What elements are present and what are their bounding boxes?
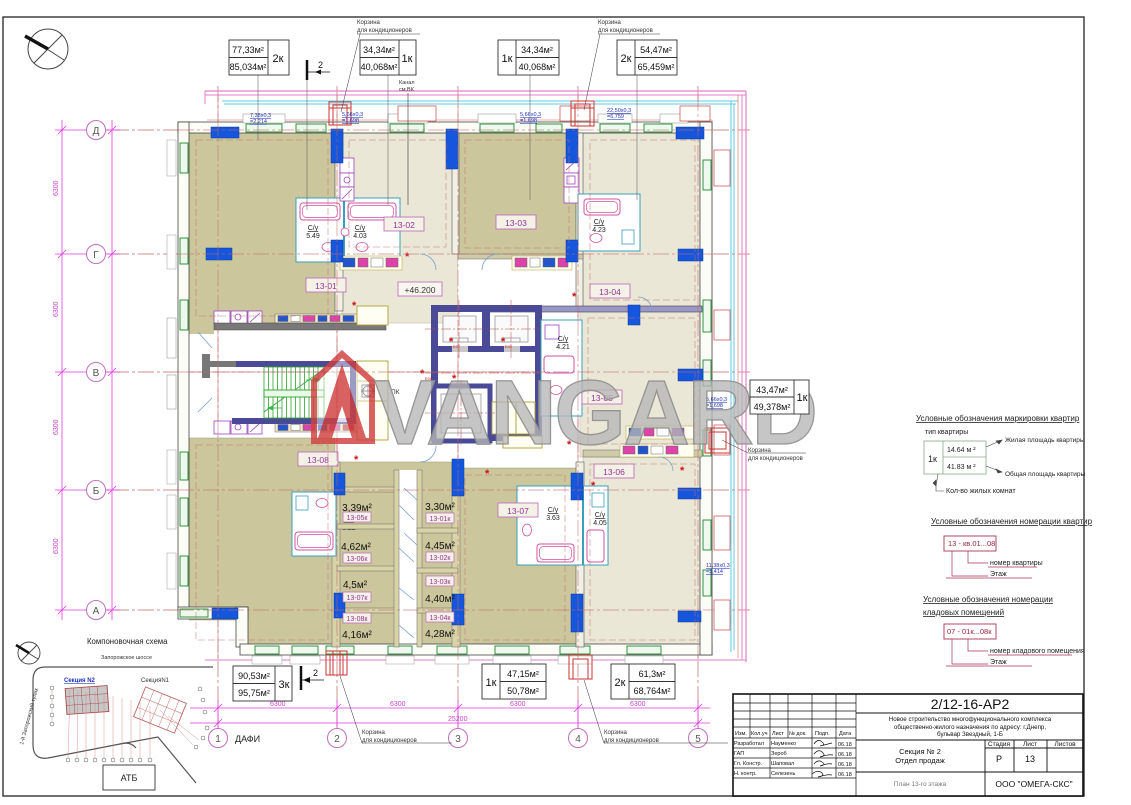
svg-text:В: В (93, 368, 100, 379)
svg-text:С/у: С/у (558, 336, 569, 343)
svg-text:6300: 6300 (510, 701, 526, 708)
svg-text:Дата: Дата (839, 731, 852, 737)
svg-text:40,068м²: 40,068м² (519, 62, 556, 72)
svg-text:4.03: 4.03 (353, 233, 367, 240)
svg-text:План 13-го этажа: План 13-го этажа (894, 781, 947, 788)
svg-text:Д: Д (93, 126, 100, 137)
svg-text:4,40м²: 4,40м² (425, 594, 455, 605)
svg-text:тип квартиры: тип квартиры (925, 429, 968, 436)
svg-text:5.49: 5.49 (306, 233, 320, 240)
svg-text:Условные обозначения маркировк: Условные обозначения маркировки квартир (916, 414, 1080, 423)
svg-text:Этаж: Этаж (990, 571, 1007, 578)
svg-text:Селезень: Селезень (771, 771, 796, 777)
svg-text:13-06: 13-06 (603, 467, 625, 477)
svg-text:13-06к: 13-06к (347, 556, 369, 563)
svg-text:4.21: 4.21 (556, 344, 570, 351)
svg-text:6300: 6300 (53, 180, 60, 196)
svg-text:3,30м²: 3,30м² (425, 502, 455, 513)
svg-text:4,28м²: 4,28м² (425, 629, 455, 640)
svg-text:С/у: С/у (548, 507, 559, 514)
svg-text:номер квартиры: номер квартиры (990, 560, 1043, 567)
svg-text:13-05к: 13-05к (347, 515, 369, 522)
svg-text:34,34м²: 34,34м² (521, 45, 553, 55)
svg-text:4,5м²: 4,5м² (343, 580, 368, 591)
svg-text:13 - кв.01...08: 13 - кв.01...08 (948, 539, 995, 548)
svg-text:1к: 1к (402, 53, 413, 65)
svg-text:Секция N2: Секция N2 (64, 678, 96, 684)
svg-text:2к: 2к (615, 677, 626, 689)
svg-text:Секция № 2: Секция № 2 (899, 747, 941, 756)
svg-text:Н. контр.: Н. контр. (734, 771, 757, 777)
svg-text:77,33м²: 77,33м² (232, 45, 264, 55)
svg-text:1к: 1к (928, 454, 937, 464)
svg-text:Изм.: Изм. (735, 731, 747, 737)
svg-text:С/у: С/у (595, 512, 606, 519)
svg-text:Шаповал: Шаповал (771, 761, 794, 767)
svg-text:Корзина: Корзина (604, 730, 628, 736)
svg-text:СекцияN1: СекцияN1 (141, 678, 170, 684)
svg-text:Кол.уч: Кол.уч (751, 731, 768, 737)
svg-text:06.18: 06.18 (838, 762, 852, 768)
svg-text:2: 2 (318, 60, 323, 70)
svg-text:13-04: 13-04 (599, 287, 621, 297)
svg-text:13-07к: 13-07к (347, 595, 369, 602)
svg-text:АТБ: АТБ (121, 773, 138, 783)
svg-text:13: 13 (1025, 754, 1035, 764)
svg-text:13-02к: 13-02к (430, 555, 452, 562)
svg-text:06.18: 06.18 (838, 772, 852, 778)
svg-text:41.83 м ²: 41.83 м ² (947, 464, 976, 471)
svg-text:Новое строительство многофункц: Новое строительство многофункционального… (889, 716, 1052, 723)
svg-text:95,75м²: 95,75м² (238, 688, 270, 698)
svg-text:68,764м²: 68,764м² (634, 686, 671, 696)
svg-text:С/у: С/у (355, 225, 366, 232)
svg-text:*: * (485, 468, 490, 480)
svg-text:13-03: 13-03 (505, 218, 527, 228)
svg-text:13-08к: 13-08к (347, 616, 369, 623)
svg-text:Компоновочная схема: Компоновочная схема (87, 637, 168, 646)
svg-text:+46.200: +46.200 (405, 285, 436, 295)
svg-text:кладовых помещений: кладовых помещений (923, 608, 1004, 617)
svg-text:E00: E00 (505, 344, 513, 349)
svg-text:*: * (572, 291, 577, 303)
svg-text:ООО "ОМЕГА-СКС": ООО "ОМЕГА-СКС" (995, 779, 1072, 789)
svg-text:Запорожское шоссе: Запорожское шоссе (101, 655, 152, 661)
svg-text:Отдел продаж: Отдел продаж (895, 756, 945, 765)
svg-text:=2,214: =2,214 (250, 119, 267, 125)
svg-text:13-04к: 13-04к (430, 615, 452, 622)
svg-text:6300: 6300 (390, 701, 406, 708)
svg-text:Гл. Констр.: Гл. Констр. (734, 761, 763, 767)
svg-text:Условные обозначения номерации: Условные обозначения номерации квартир (931, 517, 1093, 526)
svg-text:2к: 2к (273, 53, 284, 65)
svg-text:13-01к: 13-01к (430, 516, 452, 523)
svg-text:47,15м²: 47,15м² (507, 669, 539, 679)
svg-text:Лист: Лист (772, 731, 784, 737)
svg-text:=3,414: =3,414 (706, 569, 723, 575)
svg-text:Р: Р (996, 754, 1002, 764)
svg-text:13-02: 13-02 (393, 220, 415, 230)
svg-text:50,78м²: 50,78м² (507, 686, 539, 696)
svg-text:6300: 6300 (53, 301, 60, 317)
svg-text:Зероб: Зероб (771, 751, 787, 757)
svg-text:4,16м²: 4,16м² (342, 630, 372, 641)
svg-text:3.63: 3.63 (546, 515, 560, 522)
svg-text:25200: 25200 (448, 716, 468, 723)
svg-text:06.18: 06.18 (838, 742, 852, 748)
svg-text:2: 2 (313, 668, 318, 678)
svg-text:=6,759: =6,759 (607, 114, 624, 120)
svg-text:для кондиционеров: для кондиционеров (357, 28, 412, 34)
svg-text:14.64 м ²: 14.64 м ² (947, 447, 976, 454)
svg-text:бульвар Звездный, 1-Б: бульвар Звездный, 1-Б (937, 731, 1003, 738)
svg-text:Науменко: Науменко (771, 741, 796, 747)
svg-text:Кол-во жилых комнат: Кол-во жилых комнат (946, 488, 1016, 495)
svg-text:номер кладового помещения: номер кладового помещения (990, 648, 1085, 655)
svg-text:С/у: С/у (594, 219, 605, 226)
svg-text:Разработал: Разработал (734, 741, 764, 747)
svg-text:Корзина: Корзина (362, 730, 386, 736)
svg-text:07 - 01к...08к: 07 - 01к...08к (947, 627, 992, 636)
svg-text:1к: 1к (486, 677, 497, 689)
svg-text:90,53м²: 90,53м² (238, 671, 270, 681)
svg-text:*: * (405, 251, 410, 263)
svg-text:3: 3 (455, 734, 461, 745)
svg-text:2/12-16-АР2: 2/12-16-АР2 (931, 696, 1010, 712)
svg-text:для кондиционеров: для кондиционеров (598, 28, 653, 34)
svg-text:85,034м²: 85,034м² (230, 62, 267, 72)
svg-text:общественно-жилого назначения: общественно-жилого назначения по адресу:… (894, 724, 1046, 731)
svg-text:Общая площадь квартиры: Общая площадь квартиры (1005, 470, 1086, 478)
svg-text:Лист: Лист (1023, 741, 1037, 748)
svg-text:61,3м²: 61,3м² (639, 669, 666, 679)
svg-text:6300: 6300 (53, 419, 60, 435)
svg-text:13-08: 13-08 (307, 455, 329, 465)
svg-text:3к: 3к (279, 679, 290, 691)
svg-text:6300: 6300 (270, 701, 286, 708)
svg-text:Жилая площадь квартиры: Жилая площадь квартиры (1005, 437, 1085, 444)
svg-text:49,378м²: 49,378м² (754, 402, 791, 412)
svg-text:40,068м²: 40,068м² (361, 62, 398, 72)
svg-text:*: * (680, 465, 685, 477)
svg-text:Листов: Листов (1054, 741, 1076, 748)
svg-text:E00: E00 (453, 344, 461, 349)
svg-text:ГАП: ГАП (734, 751, 744, 757)
svg-text:=1,698: =1,698 (520, 118, 537, 124)
svg-text:43,47м²: 43,47м² (756, 385, 788, 395)
svg-text:1: 1 (215, 734, 221, 745)
svg-text:*: * (352, 300, 357, 312)
svg-text:2: 2 (334, 734, 340, 745)
svg-text:см.ВК: см.ВК (399, 87, 415, 93)
svg-text:13-03к: 13-03к (430, 579, 452, 586)
svg-text:4,62м²: 4,62м² (341, 542, 371, 553)
svg-text:1к: 1к (502, 53, 513, 65)
svg-text:С/у: С/у (308, 225, 319, 232)
svg-text:№ док.: № док. (789, 731, 807, 737)
svg-text:Б: Б (93, 486, 100, 497)
svg-text:Стадия: Стадия (988, 741, 1011, 748)
svg-text:=1,698: =1,698 (342, 118, 359, 124)
svg-text:4: 4 (575, 734, 581, 745)
svg-text:5: 5 (695, 734, 701, 745)
svg-text:1к: 1к (797, 392, 808, 404)
svg-text:13-07: 13-07 (507, 506, 529, 516)
svg-text:34,34м²: 34,34м² (363, 45, 395, 55)
svg-text:6300: 6300 (630, 701, 646, 708)
svg-text:6300: 6300 (53, 538, 60, 554)
svg-text:Канал: Канал (399, 80, 415, 86)
svg-text:13-01: 13-01 (315, 281, 337, 291)
svg-text:06.18: 06.18 (838, 752, 852, 758)
svg-text:4,45м²: 4,45м² (425, 541, 455, 552)
svg-text:Условные обозначения номерации: Условные обозначения номерации (923, 595, 1053, 604)
svg-text:4.23: 4.23 (592, 227, 606, 234)
svg-text:65,459м²: 65,459м² (638, 62, 675, 72)
svg-text:4.05: 4.05 (593, 520, 607, 527)
svg-text:*: * (354, 454, 359, 466)
svg-text:54,47м²: 54,47м² (640, 45, 672, 55)
svg-text:2к: 2к (621, 53, 632, 65)
svg-text:Корзина: Корзина (598, 20, 622, 26)
svg-text:Этаж: Этаж (990, 659, 1007, 666)
svg-text:Подп.: Подп. (815, 731, 830, 737)
svg-text:ДАФИ: ДАФИ (235, 734, 260, 744)
svg-text:Г: Г (93, 250, 99, 261)
svg-text:А: А (93, 606, 100, 617)
svg-text:Корзина: Корзина (357, 20, 381, 26)
